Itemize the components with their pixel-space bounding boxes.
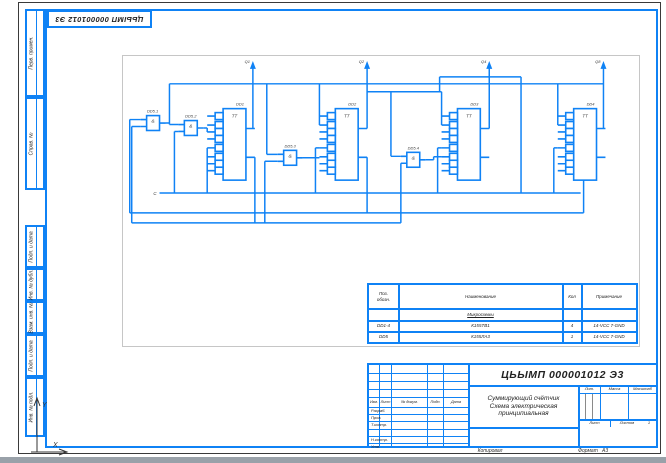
margin-cell-perv-primen: Перв. примен. (25, 9, 45, 97)
bom-header-pos: Поз.обозн. (369, 285, 398, 308)
flip-flop-dd2 (319, 109, 367, 181)
row-prov: Пров. (369, 415, 391, 421)
listov-label: Листов (612, 420, 642, 427)
bom-row-name: К155ЛА3 (399, 331, 562, 342)
clock-input-label: C (153, 191, 157, 196)
cad-sheet-canvas[interactable]: Перв. примен. Справ. № Подп. и дата Инв.… (0, 0, 666, 463)
bom-row-pos: DD1-4 (369, 320, 398, 331)
bom-row-note: 14-VCC 7-GND (582, 320, 636, 331)
col-izm: Изм. (369, 398, 379, 407)
flip-flop-dd3 (442, 109, 490, 181)
margin-label: Справ. № (29, 132, 35, 155)
bom-section-label: Микросхемы (399, 309, 562, 320)
list-label: Лист (579, 420, 610, 427)
ref-dd3: DD3 (470, 102, 479, 107)
ff-func-dd3: TT (466, 114, 472, 119)
bom-table: Поз.обозн. Наименование Кол Примечание М… (367, 283, 638, 344)
margin-cell-podp-data-1: Подп. и дата (25, 225, 45, 268)
workspace-edge-band (0, 457, 666, 463)
row-tkontr: Т.контр. (369, 422, 391, 428)
output-arrowheads (250, 61, 607, 69)
masshtab-label: Масштаб (629, 386, 656, 393)
origin-axis-marker: Y X (25, 390, 73, 460)
bom-row-qty: 1 (563, 331, 581, 342)
ref-dd4: DD4 (587, 102, 596, 107)
lit-label: Лит. (579, 386, 600, 393)
bom-header-name: Наименование (399, 285, 562, 308)
margin-cell-podp-data-2: Подп. и дата (25, 334, 45, 377)
row-razrab: Разраб. (369, 408, 391, 414)
ref-dd5-2: DD5.2 (185, 114, 197, 119)
bom-row-qty: 4 (563, 320, 581, 331)
bom-row-pos: DD5 (369, 331, 398, 342)
col-list: Лист (380, 398, 391, 407)
axis-x-label: X (52, 442, 58, 449)
doc-type-line2: принципиальная (498, 410, 548, 417)
flip-flop-dd4 (558, 109, 606, 181)
top-left-doc-number-stamp: ЦЬЫМП 000001012 Э3 (47, 10, 152, 28)
margin-label: Взам. инв. № (29, 302, 35, 333)
output-label-q4: Q4 (481, 59, 487, 64)
bom-header-note: Примечание (582, 285, 636, 308)
ref-dd5-4: DD5.4 (408, 145, 420, 150)
doc-number-rotated: ЦЬЫМП 000001012 Э3 (55, 15, 143, 24)
bom-header-qty: Кол (563, 285, 581, 308)
ff-func-dd2: TT (344, 114, 350, 119)
doc-type-line1: Схема электрическая (490, 403, 558, 410)
format-label: Формат (578, 448, 598, 454)
margin-cell-sprav-no: Справ. № (25, 97, 45, 190)
schematic-wires (130, 66, 604, 223)
ref-dd1: DD1 (236, 102, 244, 107)
ref-dd5-1: DD5.1 (147, 109, 158, 114)
title-name-cell: Суммирующий счётчик Схема электрическая … (469, 387, 578, 426)
format-note: Формат A3 (578, 448, 608, 454)
col-ndokum: № докум. (392, 398, 427, 407)
bom-row-name: К155ТВ1 (399, 320, 562, 331)
margin-label: Перв. примен. (29, 36, 35, 69)
margin-label: Инв. № дубл. (29, 269, 35, 300)
title-block: Изм. Лист № докум. Подп. Дата Разраб. Пр… (367, 363, 658, 448)
ref-dd2: DD2 (348, 102, 357, 107)
margin-label: Подп. и дата (29, 231, 35, 262)
row-utv: Утв. (369, 444, 391, 450)
output-label-q1: Q1 (245, 59, 250, 64)
col-data: Дата (444, 398, 468, 407)
bom-row-note: 14-VCC 7-GND (582, 331, 636, 342)
margin-cell-vzam-inv: Взам. инв. № (25, 301, 45, 334)
listov-value: 1 (643, 420, 655, 427)
col-podp: Подп. (428, 398, 443, 407)
row-nkontr: Н.контр. (369, 437, 391, 443)
margin-label: Подп. и дата (29, 340, 35, 371)
output-label-q2: Q2 (359, 59, 365, 64)
ref-dd5-3: DD5.3 (285, 143, 297, 148)
margin-cell-inv-dubl: Инв. № дубл. (25, 268, 45, 301)
massa-label: Масса (601, 386, 628, 393)
flip-flop-dd1 (207, 109, 255, 181)
format-value: A3 (602, 448, 608, 454)
axis-y-label: Y (42, 402, 48, 409)
output-label-q8: Q8 (595, 59, 601, 64)
ff-func-dd4: TT (582, 114, 588, 119)
ff-func-dd1: TT (232, 114, 238, 119)
title-doc-number: ЦЬЫМП 000001012 Э3 (469, 365, 656, 385)
product-title: Суммирующий счётчик (488, 395, 560, 402)
copied-label: Копировал (430, 448, 550, 454)
